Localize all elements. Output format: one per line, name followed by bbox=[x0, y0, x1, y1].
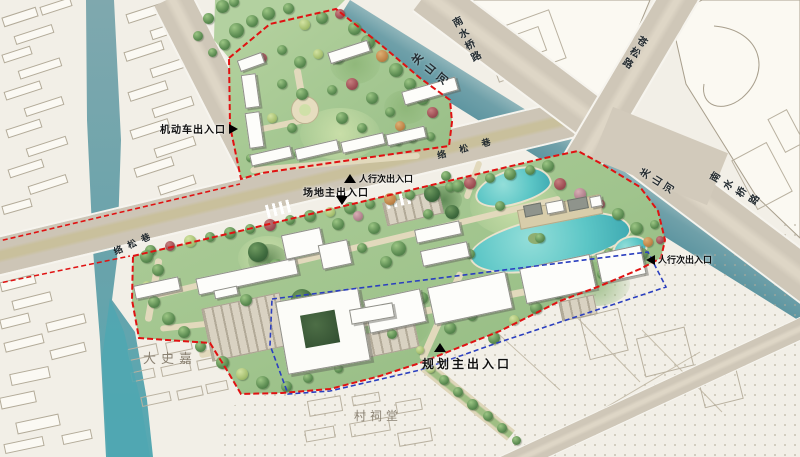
tree bbox=[426, 132, 435, 141]
tree bbox=[453, 387, 463, 397]
label-planning-main-entrance: 规划主出入口 bbox=[422, 355, 512, 372]
circular-plaza bbox=[291, 96, 319, 124]
tree bbox=[357, 123, 367, 133]
dashijia-text: 大史嘉 bbox=[143, 348, 197, 367]
tree bbox=[267, 113, 277, 123]
cadastral-block bbox=[11, 291, 52, 310]
tree bbox=[464, 177, 476, 189]
tree bbox=[303, 373, 313, 383]
tree bbox=[262, 7, 275, 20]
tree bbox=[205, 232, 215, 242]
building bbox=[318, 239, 353, 270]
tree bbox=[140, 250, 153, 263]
tree bbox=[427, 107, 438, 118]
building bbox=[237, 52, 266, 72]
tree bbox=[530, 302, 542, 314]
cadastral-block bbox=[1, 198, 32, 215]
tree bbox=[336, 112, 348, 124]
cadastral-block bbox=[3, 436, 44, 454]
tree bbox=[229, 0, 239, 7]
vehicle-entrance-text: 机动车出入口 bbox=[160, 121, 226, 136]
cadastral-block bbox=[205, 380, 229, 394]
tree bbox=[385, 107, 395, 117]
cadastral-block bbox=[153, 136, 196, 158]
tree bbox=[389, 63, 403, 77]
tree bbox=[277, 79, 287, 89]
tree bbox=[296, 88, 308, 100]
cadastral-block bbox=[5, 119, 42, 139]
tree bbox=[512, 436, 521, 445]
tree bbox=[165, 241, 175, 251]
site-main-marker-icon bbox=[336, 196, 348, 205]
tree bbox=[287, 123, 297, 133]
tree bbox=[304, 210, 316, 222]
tree bbox=[327, 85, 337, 95]
tree bbox=[240, 294, 252, 306]
tree bbox=[203, 13, 214, 24]
vehicle-entrance-arrow-icon bbox=[229, 124, 238, 134]
pedestrian-north-marker-icon bbox=[344, 174, 356, 183]
tree bbox=[612, 208, 624, 220]
planning-main-marker-icon bbox=[434, 343, 446, 352]
building bbox=[414, 220, 462, 243]
tree bbox=[152, 264, 164, 276]
tree bbox=[184, 235, 196, 247]
cadastral-block bbox=[123, 40, 164, 62]
tree bbox=[439, 375, 449, 385]
tree bbox=[380, 256, 392, 268]
tree bbox=[208, 48, 217, 57]
tree bbox=[248, 242, 268, 262]
cadastral-block bbox=[7, 159, 44, 179]
tree bbox=[535, 233, 545, 243]
tree bbox=[277, 45, 287, 55]
tree bbox=[504, 168, 516, 180]
tree bbox=[483, 411, 493, 421]
cadastral-block bbox=[49, 342, 86, 360]
cadastral-block bbox=[61, 429, 92, 445]
tree bbox=[148, 296, 160, 308]
tree bbox=[441, 171, 451, 181]
tree bbox=[452, 180, 464, 192]
courtyard-garden bbox=[300, 310, 340, 349]
cadastral-block bbox=[1, 46, 32, 64]
cadastral-block bbox=[767, 109, 800, 153]
cadastral-block bbox=[3, 333, 44, 352]
tree bbox=[313, 49, 323, 59]
building-u-shaped bbox=[275, 287, 371, 374]
tree bbox=[542, 160, 554, 172]
tree bbox=[229, 23, 244, 38]
tree bbox=[335, 9, 345, 19]
tree bbox=[216, 0, 229, 13]
tree bbox=[424, 186, 440, 202]
tree bbox=[285, 215, 295, 225]
tree bbox=[299, 19, 310, 30]
cadastral-block bbox=[151, 96, 194, 118]
cadastral-block bbox=[24, 96, 65, 117]
cadastral-block bbox=[127, 80, 168, 102]
tree bbox=[162, 312, 175, 325]
tree bbox=[423, 209, 433, 219]
cadastral-block bbox=[39, 0, 72, 16]
tree bbox=[495, 201, 505, 211]
tree bbox=[384, 193, 396, 205]
cadastral-block bbox=[0, 313, 31, 330]
tree bbox=[246, 15, 258, 27]
tree bbox=[353, 211, 363, 221]
tree bbox=[348, 22, 361, 35]
cadastral-block bbox=[9, 366, 51, 386]
tree bbox=[193, 31, 203, 41]
tree bbox=[643, 237, 653, 247]
cadastral-block bbox=[4, 80, 43, 100]
tree bbox=[650, 220, 659, 229]
cadastral-block bbox=[45, 313, 86, 332]
tree bbox=[245, 224, 255, 234]
cadastral-block bbox=[14, 24, 55, 45]
cadastral-block bbox=[133, 156, 174, 178]
tree bbox=[391, 241, 406, 256]
tree bbox=[444, 322, 456, 334]
cadastral-block bbox=[15, 414, 61, 435]
tree bbox=[416, 346, 424, 354]
cadastral-block bbox=[0, 390, 37, 409]
tree bbox=[219, 39, 230, 50]
tree bbox=[376, 50, 388, 62]
tree bbox=[332, 218, 344, 230]
tree bbox=[405, 190, 415, 200]
cadastral-block bbox=[0, 274, 37, 292]
cadastral-block bbox=[1, 7, 38, 28]
tree bbox=[387, 329, 397, 339]
tree bbox=[366, 92, 378, 104]
label-village-ancestral-hall: 村祠堂 bbox=[354, 407, 402, 424]
cadastral-block bbox=[26, 136, 69, 158]
building bbox=[420, 241, 470, 267]
master-plan-canvas: 机动车出入口 人行次出入口 场地主出入口 人行次出入口 规划主出入口 大史嘉 村… bbox=[0, 0, 800, 457]
planning-main-text: 规划主出入口 bbox=[422, 355, 512, 372]
ancestral-hall-text: 村祠堂 bbox=[354, 407, 402, 424]
tree bbox=[445, 205, 459, 219]
tree bbox=[256, 376, 269, 389]
building bbox=[589, 195, 603, 208]
tree bbox=[368, 222, 380, 234]
tree bbox=[509, 315, 519, 325]
tree bbox=[365, 199, 375, 209]
cadastral-block bbox=[176, 385, 204, 400]
building bbox=[427, 271, 513, 325]
tree bbox=[488, 332, 500, 344]
pedestrian-east-text: 人行次出入口 bbox=[658, 253, 712, 266]
tree bbox=[325, 207, 335, 217]
tree bbox=[357, 243, 367, 253]
cadastral-block bbox=[18, 57, 63, 79]
label-vehicle-entrance: 机动车出入口 bbox=[160, 121, 238, 136]
tree bbox=[316, 12, 328, 24]
tree bbox=[216, 356, 229, 369]
tree bbox=[283, 3, 294, 14]
tree bbox=[281, 381, 292, 392]
tree bbox=[467, 399, 478, 410]
tree bbox=[656, 236, 664, 244]
label-pedestrian-secondary-east: 人行次出入口 bbox=[646, 253, 712, 266]
tree bbox=[236, 368, 248, 380]
tree bbox=[525, 165, 535, 175]
tree bbox=[178, 326, 190, 338]
tree bbox=[554, 178, 566, 190]
tree bbox=[497, 423, 507, 433]
pedestrian-east-marker-icon bbox=[646, 255, 655, 265]
label-dashijia-village: 大史嘉 bbox=[143, 348, 197, 367]
tree bbox=[485, 173, 495, 183]
tree bbox=[294, 56, 306, 68]
cadastral-block bbox=[28, 174, 69, 195]
tree bbox=[224, 227, 236, 239]
tree bbox=[264, 219, 276, 231]
tree bbox=[346, 78, 358, 90]
tree bbox=[630, 222, 643, 235]
